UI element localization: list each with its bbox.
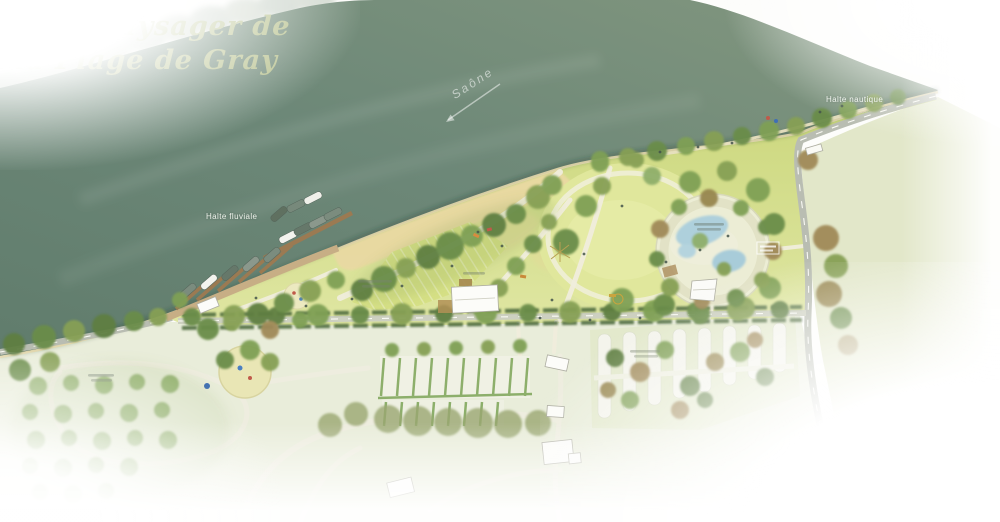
plaza-pavilion — [690, 279, 717, 301]
plan-title-line2: la Plage de Gray — [14, 44, 289, 78]
plan-title: Parc paysager de la Plage de Gray — [14, 10, 291, 78]
halte-nautique-label: Halte nautique — [826, 95, 883, 104]
plan-title-line1: Parc paysager de — [16, 10, 291, 44]
park-masterplan: .t1{fill:#6b8d49}.t2{fill:#7fa055}.t3{fi… — [0, 0, 1000, 522]
halte-fluviale-label: Halte fluviale — [206, 212, 257, 221]
masterplan-drawing: .t1{fill:#6b8d49}.t2{fill:#7fa055}.t3{fi… — [0, 0, 1000, 522]
